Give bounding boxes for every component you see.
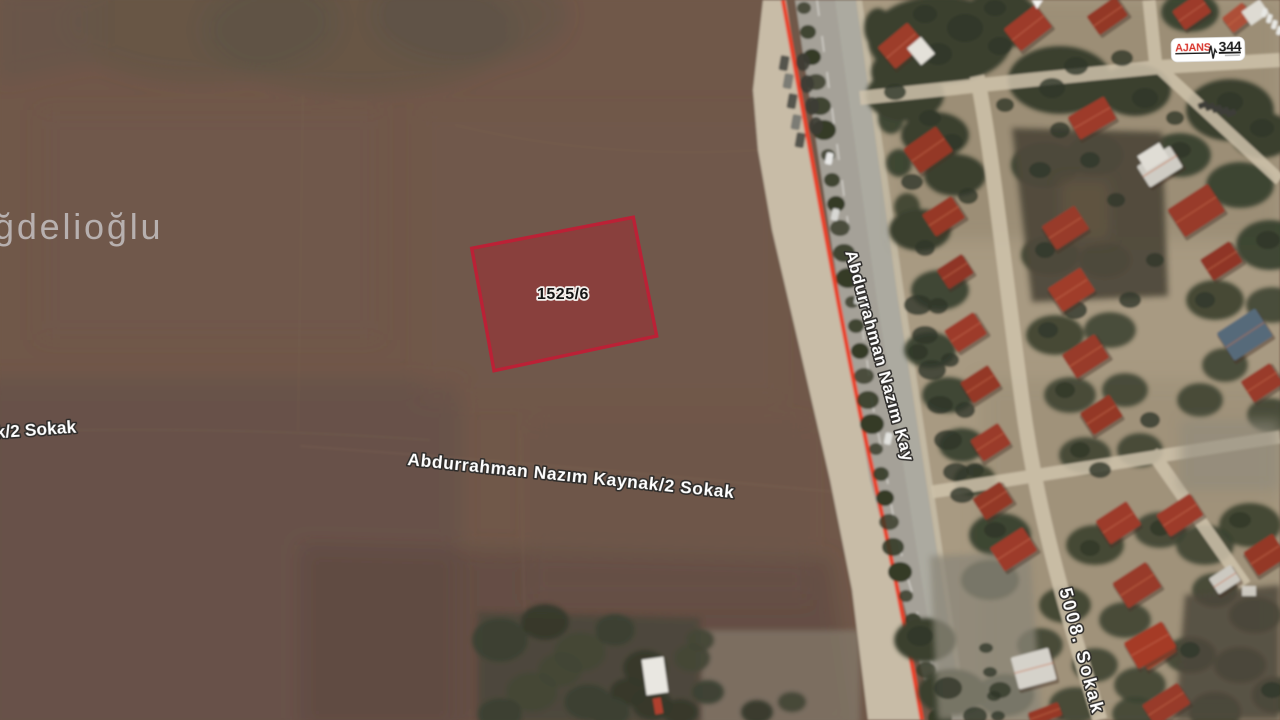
svg-text:ğdelioğlu: ğdelioğlu — [0, 206, 163, 247]
svg-text:1525/6: 1525/6 — [537, 286, 589, 303]
